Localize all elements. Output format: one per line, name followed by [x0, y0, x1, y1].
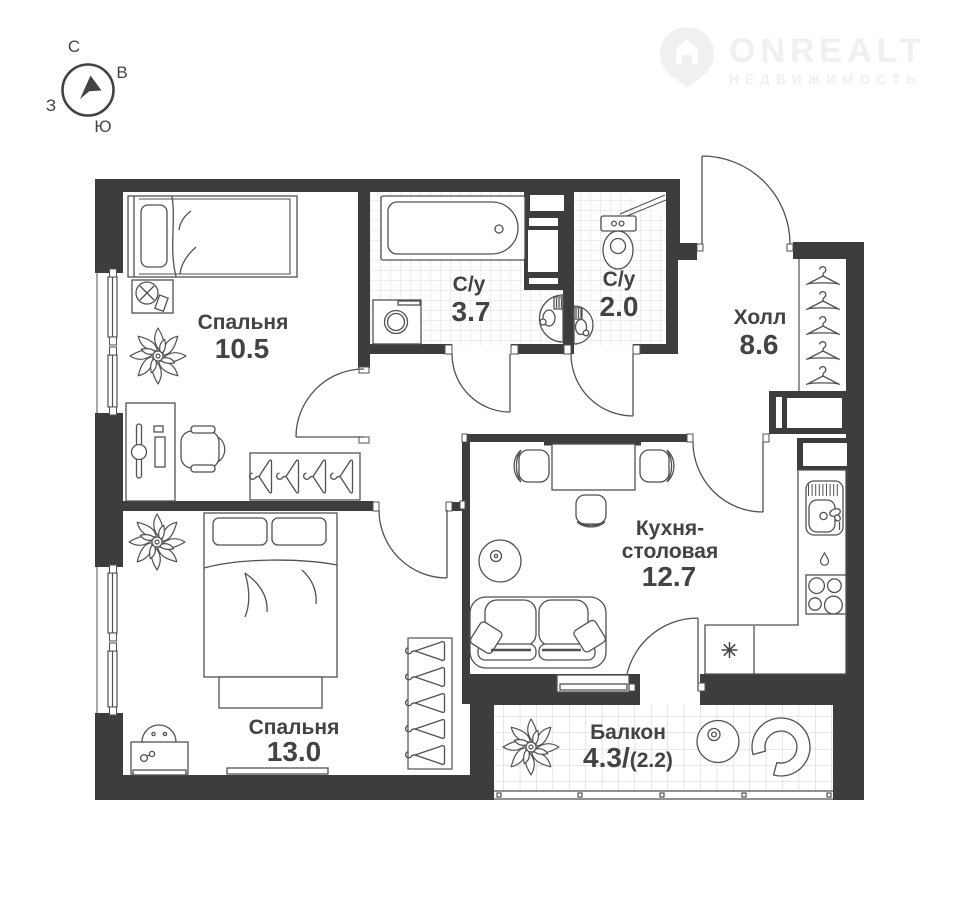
- svg-text:НЕДВИЖИМОСТЬ: НЕДВИЖИМОСТЬ: [729, 72, 922, 87]
- svg-text:С/у: С/у: [603, 268, 636, 291]
- svg-text:12.7: 12.7: [642, 561, 697, 592]
- svg-text:2.0: 2.0: [600, 291, 639, 322]
- svg-text:З: З: [46, 96, 56, 115]
- svg-text:3.7: 3.7: [452, 296, 491, 327]
- svg-text:В: В: [116, 63, 127, 82]
- svg-text:Холл: Холл: [734, 306, 787, 329]
- svg-text:10.5: 10.5: [215, 333, 270, 364]
- svg-text:столовая: столовая: [622, 540, 718, 563]
- svg-text:Спальня: Спальня: [198, 311, 289, 334]
- svg-text:С/у: С/у: [453, 273, 486, 296]
- svg-text:Ю: Ю: [94, 117, 111, 136]
- svg-text:ONREALT: ONREALT: [729, 32, 926, 70]
- svg-text:Кухня-: Кухня-: [636, 517, 704, 540]
- svg-text:13.0: 13.0: [267, 736, 322, 767]
- svg-text:Балкон: Балкон: [590, 721, 666, 744]
- svg-text:8.6: 8.6: [740, 329, 779, 360]
- svg-text:С: С: [68, 37, 80, 56]
